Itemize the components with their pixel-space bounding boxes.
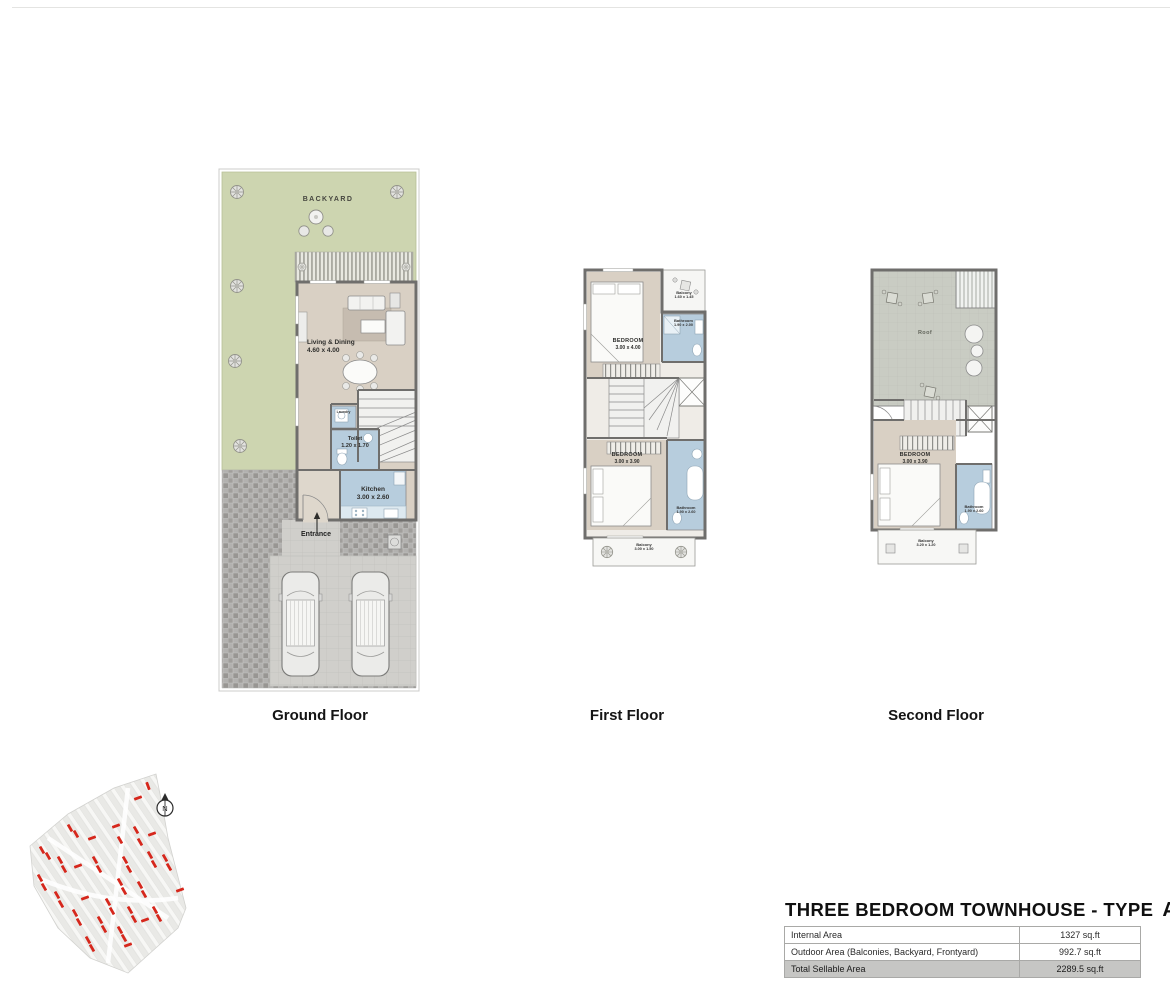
floorplan-sheet: BACKYARD Living & Dining 4.60 x 4.00 Lau… <box>0 0 1170 1000</box>
room-label-laundry: Laundry <box>330 410 357 415</box>
second-floor-plan: Roof BEDROOM 3.00 x 3.90 Bathroom 1.90 x… <box>870 268 998 568</box>
room-label-bathroom-2f: Bathroom 1.90 x 2.60 <box>956 504 992 514</box>
area-row-value: 992.7 sq.ft <box>1020 944 1141 961</box>
first-floor-plan: BEDROOM 3.00 x 4.00 Balcony 1.60 x 1.45 … <box>583 268 707 568</box>
room-label-bedroom-2: BEDROOM 3.00 x 3.90 <box>589 452 665 466</box>
plan-title: THREE BEDROOM TOWNHOUSE - TYPEA <box>785 899 1170 922</box>
room-label-backyard: BACKYARD <box>268 195 388 204</box>
area-table: Internal Area 1327 sq.ft Outdoor Area (B… <box>784 926 1141 978</box>
second-floor-drawing <box>870 268 998 568</box>
area-row-label: Outdoor Area (Balconies, Backyard, Front… <box>785 944 1020 961</box>
room-label-kitchen: Kitchen 3.00 x 2.60 <box>340 486 406 503</box>
room-label-balcony-top: Balcony 1.60 x 1.45 <box>663 290 705 300</box>
area-row-value: 1327 sq.ft <box>1020 927 1141 944</box>
room-label-entrance: Entrance <box>284 530 348 539</box>
caption-ground-floor: Ground Floor <box>272 707 368 724</box>
north-label: N <box>162 804 167 813</box>
first-floor-drawing <box>583 268 707 568</box>
room-label-balcony-2f: Balcony 3.20 x 1.20 <box>878 538 974 548</box>
room-label-balcony-bottom: Balcony 3.00 x 1.50 <box>593 542 695 552</box>
ground-floor-drawing <box>218 168 420 692</box>
room-label-living-dining: Living & Dining 4.60 x 4.00 <box>307 339 379 356</box>
site-plan-drawing: N <box>28 768 233 988</box>
page-top-rule <box>12 7 1170 8</box>
caption-second-floor: Second Floor <box>888 707 984 724</box>
plan-type-letter: A <box>1162 899 1170 921</box>
room-label-bathroom-bottom: Bathroom 1.90 x 2.60 <box>667 505 705 515</box>
room-label-roof: Roof <box>896 330 954 337</box>
area-row-value: 2289.5 sq.ft <box>1020 961 1141 978</box>
area-row-internal: Internal Area 1327 sq.ft <box>785 927 1141 944</box>
area-row-total: Total Sellable Area 2289.5 sq.ft <box>785 961 1141 978</box>
ground-floor-plan: BACKYARD Living & Dining 4.60 x 4.00 Lau… <box>218 168 420 692</box>
area-row-label: Internal Area <box>785 927 1020 944</box>
area-row-label: Total Sellable Area <box>785 961 1020 978</box>
plan-title-text: THREE BEDROOM TOWNHOUSE - TYPE <box>785 899 1153 920</box>
room-label-bedroom-3: BEDROOM 3.00 x 3.90 <box>878 452 952 466</box>
site-plan: N <box>28 768 233 988</box>
room-label-bathroom-top: Bathroom 1.90 x 2.00 <box>662 318 705 328</box>
area-row-outdoor: Outdoor Area (Balconies, Backyard, Front… <box>785 944 1141 961</box>
caption-first-floor: First Floor <box>590 707 664 724</box>
room-label-bedroom-1: BEDROOM 3.00 x 4.00 <box>591 338 665 352</box>
room-label-toilet: Toilet 1.20 x 1.70 <box>330 436 380 450</box>
